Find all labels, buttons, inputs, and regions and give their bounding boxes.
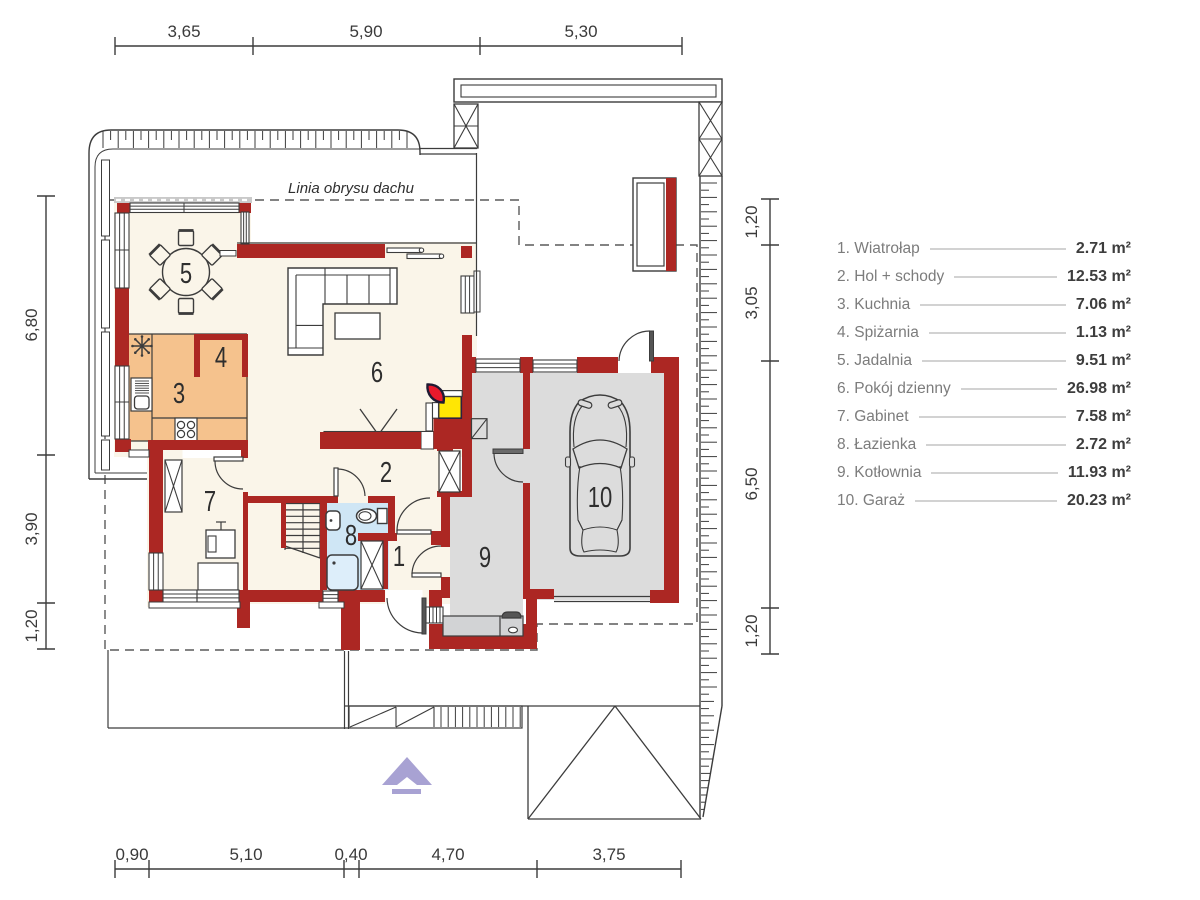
svg-text:4,70: 4,70: [431, 845, 464, 864]
svg-text:1,20: 1,20: [22, 609, 41, 642]
svg-text:3,90: 3,90: [22, 512, 41, 545]
svg-text:5,30: 5,30: [564, 22, 597, 41]
svg-text:0,90: 0,90: [115, 845, 148, 864]
svg-text:3,75: 3,75: [592, 845, 625, 864]
svg-text:8: 8: [345, 520, 357, 552]
svg-text:Linia obrysu dachu: Linia obrysu dachu: [288, 180, 415, 197]
svg-text:2: 2: [380, 457, 392, 489]
svg-text:10: 10: [588, 482, 613, 514]
svg-text:6,50: 6,50: [742, 467, 761, 500]
svg-text:6,80: 6,80: [22, 308, 41, 341]
svg-text:1: 1: [393, 541, 405, 573]
svg-text:5,10: 5,10: [229, 845, 262, 864]
svg-text:9: 9: [479, 542, 491, 574]
svg-text:0,40: 0,40: [334, 845, 367, 864]
svg-text:3,05: 3,05: [742, 286, 761, 319]
svg-text:4: 4: [215, 342, 227, 374]
svg-text:5: 5: [180, 258, 192, 290]
svg-text:7: 7: [204, 486, 216, 518]
svg-text:3,65: 3,65: [167, 22, 200, 41]
svg-text:3: 3: [173, 378, 185, 410]
svg-text:6: 6: [371, 357, 383, 389]
svg-text:1,20: 1,20: [742, 205, 761, 238]
svg-text:5,90: 5,90: [349, 22, 382, 41]
svg-text:1,20: 1,20: [742, 614, 761, 647]
